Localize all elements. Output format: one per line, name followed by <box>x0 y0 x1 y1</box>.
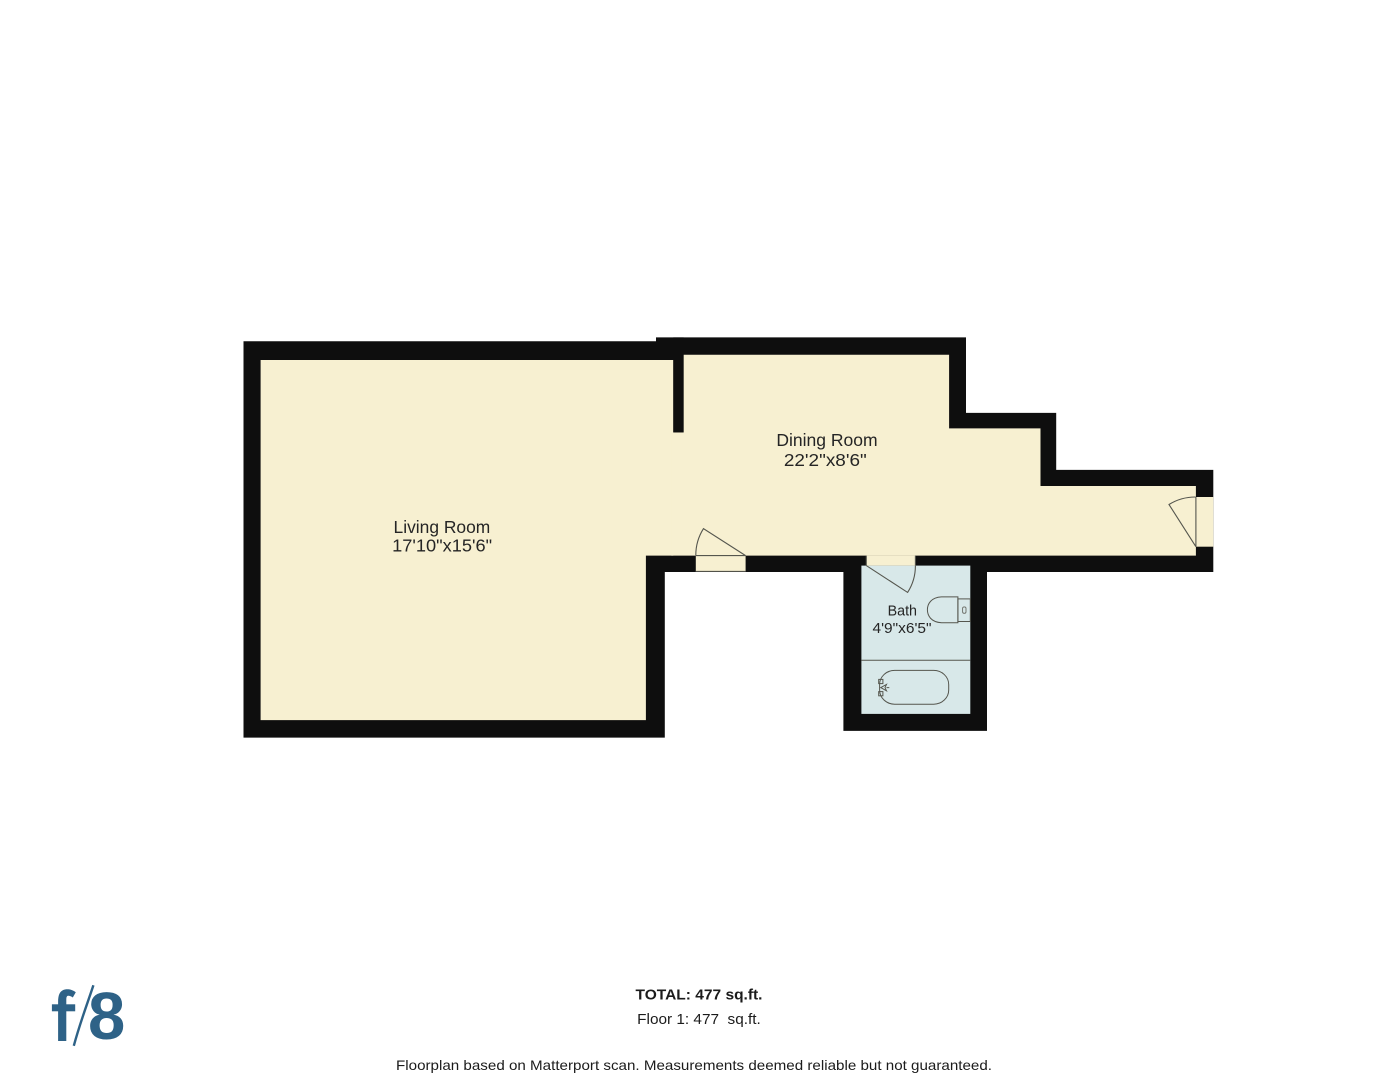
svg-text:TOTAL: 477 sq.ft.: TOTAL: 477 sq.ft. <box>636 987 763 1004</box>
svg-text:22'2"x8'6": 22'2"x8'6" <box>784 450 867 470</box>
svg-text:8: 8 <box>88 979 125 1054</box>
svg-text:17'10"x15'6": 17'10"x15'6" <box>392 535 492 555</box>
svg-text:Floorplan based on Matterport: Floorplan based on Matterport scan. Meas… <box>396 1057 992 1073</box>
svg-text:Living Room: Living Room <box>394 517 491 537</box>
svg-text:4'9"x6'5": 4'9"x6'5" <box>873 621 932 637</box>
svg-text:Bath: Bath <box>888 604 917 620</box>
svg-text:Dining Room: Dining Room <box>776 430 877 450</box>
svg-text:Floor 1: 477 sq.ft.: Floor 1: 477 sq.ft. <box>637 1012 761 1028</box>
